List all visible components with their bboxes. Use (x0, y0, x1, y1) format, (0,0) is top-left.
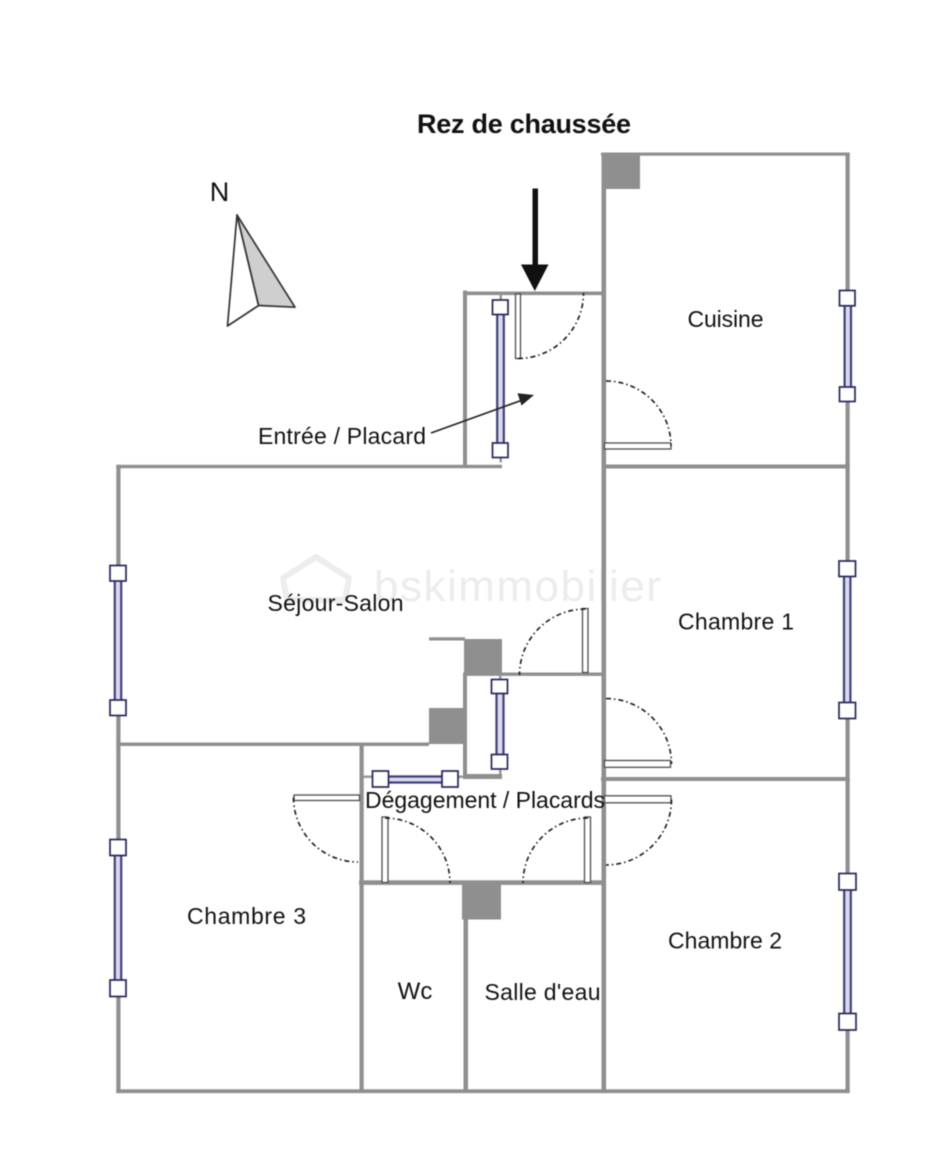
svg-text:Rez de chaussée: Rez de chaussée (417, 109, 631, 139)
svg-text:N: N (210, 177, 230, 207)
svg-text:Dégagement / Placards: Dégagement / Placards (365, 787, 605, 813)
svg-text:Chambre 3: Chambre 3 (187, 903, 306, 929)
svg-text:Entrée / Placard: Entrée / Placard (258, 423, 426, 449)
svg-text:Wc: Wc (398, 978, 433, 1005)
svg-text:Séjour-Salon: Séjour-Salon (268, 590, 404, 616)
svg-text:Cuisine: Cuisine (688, 306, 764, 332)
svg-text:Chambre 1: Chambre 1 (678, 609, 794, 635)
svg-text:bskimmobilier: bskimmobilier (374, 562, 662, 611)
svg-text:Salle d'eau: Salle d'eau (485, 979, 601, 1005)
svg-text:Chambre 2: Chambre 2 (668, 928, 782, 954)
